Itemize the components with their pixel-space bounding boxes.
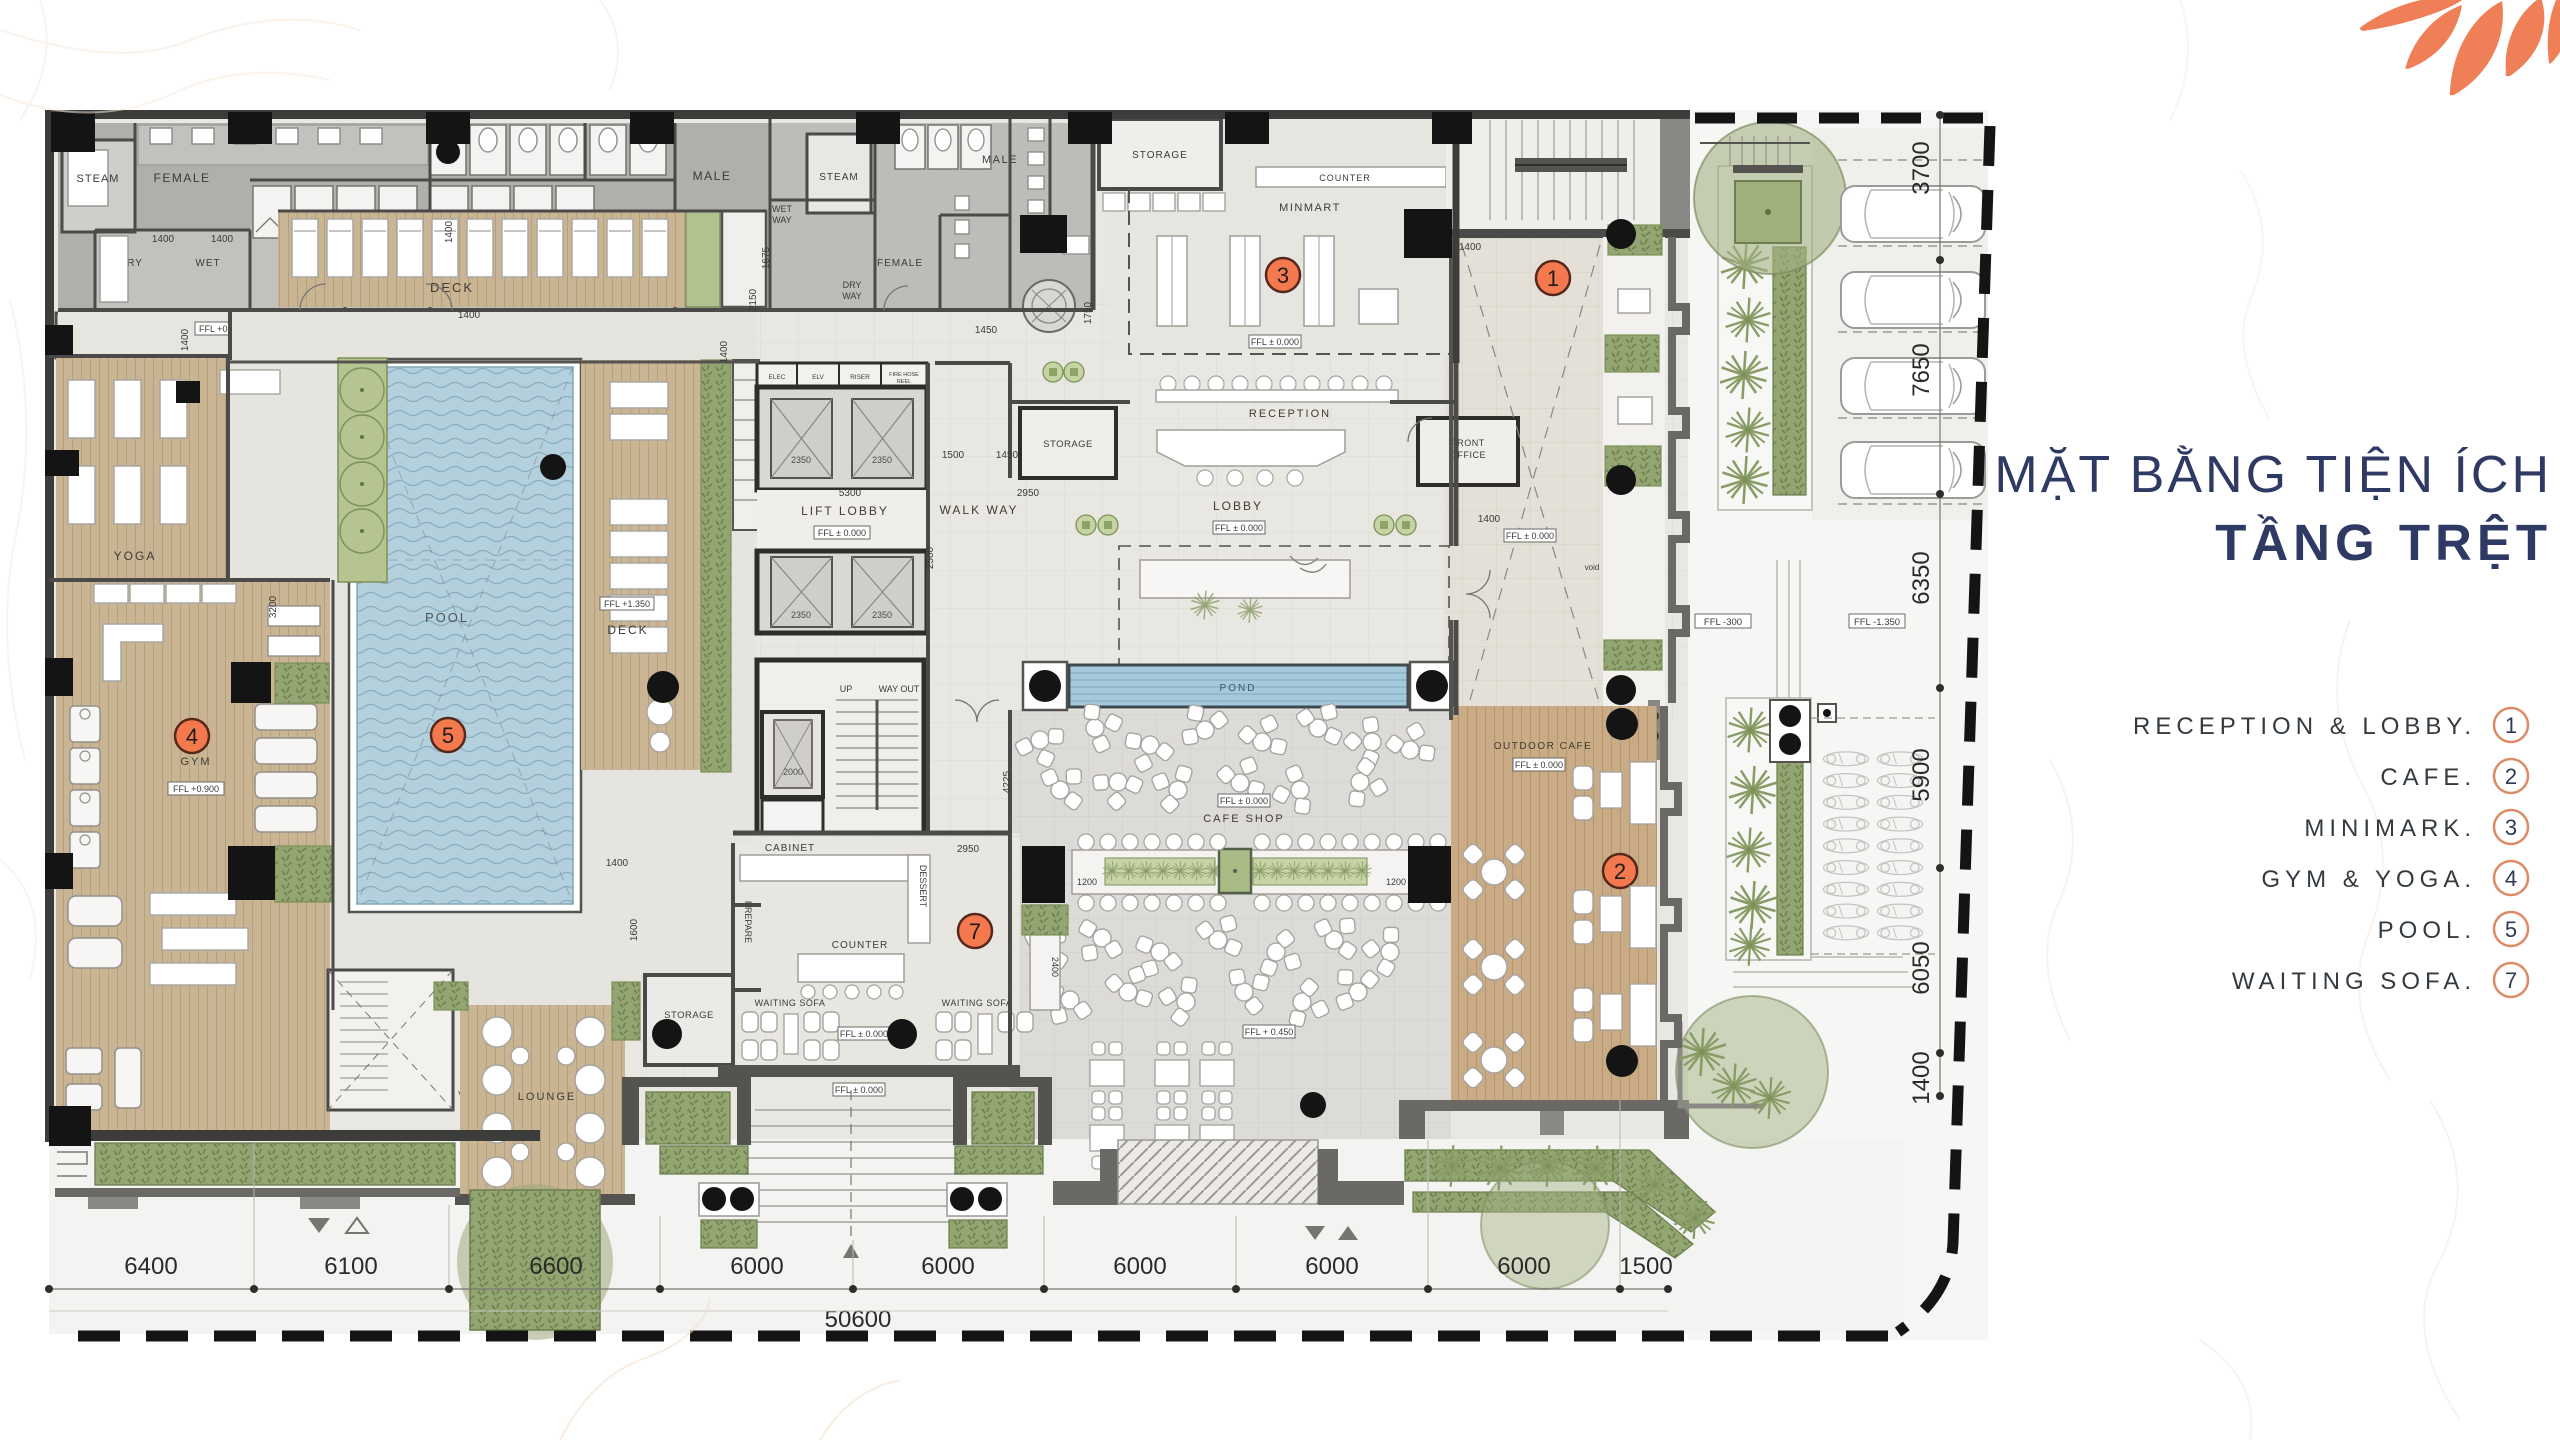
svg-text:FFL ± 0.000: FFL ± 0.000 [1515, 760, 1563, 770]
svg-text:1400: 1400 [458, 310, 481, 321]
svg-text:2950: 2950 [957, 844, 980, 855]
svg-text:50600: 50600 [825, 1306, 892, 1333]
svg-text:4: 4 [186, 724, 198, 749]
svg-text:FFL ± 0.000: FFL ± 0.000 [835, 1085, 883, 1095]
svg-text:5: 5 [2505, 917, 2517, 942]
svg-text:6350: 6350 [1908, 551, 1935, 604]
svg-text:1200: 1200 [1077, 877, 1097, 887]
svg-text:6400: 6400 [124, 1253, 177, 1280]
svg-text:2350: 2350 [872, 610, 892, 620]
svg-text:MẶT BẰNG TIỆN ÍCH: MẶT BẰNG TIỆN ÍCH [1994, 445, 2552, 504]
svg-text:1750: 1750 [1083, 301, 1094, 324]
svg-text:WAY: WAY [842, 291, 862, 301]
svg-text:CABINET: CABINET [765, 843, 815, 854]
svg-text:STORAGE: STORAGE [1043, 439, 1093, 450]
svg-text:FFL ± 0.000: FFL ± 0.000 [1215, 523, 1263, 533]
svg-text:2150: 2150 [748, 288, 759, 311]
svg-text:7650: 7650 [1908, 343, 1935, 396]
svg-text:FFL ± 0.000: FFL ± 0.000 [1251, 337, 1299, 347]
svg-text:2400: 2400 [1050, 957, 1060, 977]
svg-text:3: 3 [2505, 815, 2517, 840]
svg-text:WAITING SOFA: WAITING SOFA [942, 998, 1013, 1008]
svg-text:5900: 5900 [1908, 748, 1935, 801]
svg-text:FIRE HOSE: FIRE HOSE [889, 372, 919, 378]
svg-text:1600: 1600 [629, 918, 640, 941]
svg-text:GYM: GYM [180, 756, 211, 768]
svg-text:1500: 1500 [942, 450, 965, 461]
svg-text:REEL: REEL [897, 379, 911, 385]
svg-text:FFL ± 0.000: FFL ± 0.000 [1220, 796, 1268, 806]
svg-text:UP: UP [840, 684, 853, 694]
svg-text:4: 4 [2505, 866, 2517, 891]
svg-text:WET: WET [772, 204, 792, 214]
svg-text:1400: 1400 [1459, 242, 1482, 253]
svg-text:MINMART: MINMART [1279, 202, 1341, 214]
svg-text:FFL ± 0.000: FFL ± 0.000 [1506, 531, 1554, 541]
svg-text:2350: 2350 [791, 610, 811, 620]
svg-text:GYM & YOGA.: GYM & YOGA. [2261, 866, 2476, 893]
svg-text:STORAGE: STORAGE [664, 1010, 714, 1021]
svg-text:WALK WAY: WALK WAY [940, 503, 1019, 517]
svg-text:WAITING SOFA.: WAITING SOFA. [2232, 968, 2476, 995]
svg-text:CAFE SHOP: CAFE SHOP [1203, 813, 1285, 825]
svg-text:DESSERT: DESSERT [918, 865, 928, 908]
svg-text:3: 3 [1277, 263, 1289, 288]
svg-text:POOL: POOL [425, 610, 469, 625]
svg-text:RECEPTION & LOBBY.: RECEPTION & LOBBY. [2133, 713, 2476, 740]
svg-text:WAY: WAY [772, 215, 792, 225]
svg-text:1400: 1400 [152, 234, 175, 245]
svg-text:6100: 6100 [324, 1253, 377, 1280]
svg-text:WAY OUT: WAY OUT [879, 684, 920, 694]
svg-text:FFL +1.350: FFL +1.350 [604, 599, 650, 609]
svg-text:TẦNG TRỆT: TẦNG TRỆT [2215, 513, 2552, 571]
svg-text:FFL + 0.450: FFL + 0.450 [1245, 1027, 1293, 1037]
svg-text:FFL +0.900: FFL +0.900 [173, 784, 219, 794]
svg-text:LOUNGE: LOUNGE [518, 1091, 576, 1103]
svg-text:1: 1 [2505, 713, 2517, 738]
svg-text:LIFT LOBBY: LIFT LOBBY [801, 504, 889, 518]
svg-text:PREPARE: PREPARE [743, 901, 753, 943]
svg-text:void: void [1585, 563, 1600, 572]
svg-text:6000: 6000 [1497, 1253, 1550, 1280]
svg-text:MALE: MALE [693, 169, 732, 183]
svg-text:1450: 1450 [975, 325, 998, 336]
svg-text:YOGA: YOGA [114, 549, 157, 563]
svg-text:FFL -1.350: FFL -1.350 [1854, 617, 1900, 628]
svg-text:POOL.: POOL. [2378, 917, 2476, 944]
svg-text:1500: 1500 [1619, 1253, 1672, 1280]
svg-text:POND: POND [1220, 683, 1257, 694]
svg-text:2: 2 [2505, 764, 2517, 789]
svg-text:COUNTER: COUNTER [832, 940, 888, 951]
svg-text:7: 7 [969, 919, 981, 944]
svg-text:1400: 1400 [1908, 1051, 1935, 1104]
svg-text:2500: 2500 [925, 546, 936, 569]
svg-text:FFL ± 0.000: FFL ± 0.000 [840, 1029, 888, 1039]
svg-text:COUNTER: COUNTER [1319, 173, 1371, 183]
svg-text:MINIMARK.: MINIMARK. [2304, 815, 2476, 842]
svg-text:1400: 1400 [211, 234, 234, 245]
svg-text:3200: 3200 [268, 595, 279, 618]
svg-text:ELEC: ELEC [769, 374, 786, 381]
svg-text:6000: 6000 [730, 1253, 783, 1280]
svg-text:1: 1 [1547, 266, 1559, 291]
svg-text:OUTDOOR CAFE: OUTDOOR CAFE [1494, 741, 1593, 752]
svg-text:WET: WET [195, 258, 220, 269]
svg-text:5300: 5300 [839, 488, 862, 499]
svg-text:DRY: DRY [843, 280, 862, 290]
svg-text:LOBBY: LOBBY [1213, 499, 1263, 513]
svg-text:5: 5 [442, 723, 454, 748]
svg-text:WAITING SOFA: WAITING SOFA [755, 998, 826, 1008]
svg-text:3700: 3700 [1908, 141, 1935, 194]
svg-text:STEAM: STEAM [77, 173, 120, 185]
svg-text:1675: 1675 [761, 246, 772, 269]
svg-text:STORAGE: STORAGE [1132, 150, 1188, 161]
svg-text:FFL ± 0.000: FFL ± 0.000 [818, 528, 866, 538]
svg-text:FEMALE: FEMALE [877, 258, 923, 269]
svg-text:6000: 6000 [921, 1253, 974, 1280]
svg-text:2350: 2350 [791, 455, 811, 465]
svg-text:6050: 6050 [1908, 941, 1935, 994]
svg-text:2000: 2000 [783, 767, 803, 777]
svg-text:7: 7 [2505, 968, 2517, 993]
svg-text:MALE: MALE [982, 154, 1018, 166]
svg-text:RISER: RISER [850, 374, 870, 381]
svg-text:1450: 1450 [996, 450, 1019, 461]
svg-text:FFL -300: FFL -300 [1704, 617, 1742, 628]
svg-text:FEMALE: FEMALE [153, 171, 210, 185]
svg-text:1400: 1400 [719, 340, 730, 363]
svg-text:1400: 1400 [1478, 514, 1501, 525]
svg-text:4225: 4225 [1002, 770, 1013, 793]
svg-text:ELV: ELV [812, 374, 824, 381]
svg-text:2950: 2950 [1017, 488, 1040, 499]
svg-text:RECEPTION: RECEPTION [1249, 408, 1331, 420]
svg-text:DECK: DECK [430, 280, 474, 295]
svg-text:DECK: DECK [607, 623, 648, 637]
svg-text:6600: 6600 [529, 1253, 582, 1280]
svg-text:2350: 2350 [872, 455, 892, 465]
svg-text:CAFE.: CAFE. [2380, 764, 2476, 791]
svg-text:1400: 1400 [180, 328, 191, 351]
svg-text:6000: 6000 [1305, 1253, 1358, 1280]
svg-text:6000: 6000 [1113, 1253, 1166, 1280]
svg-text:1400: 1400 [606, 858, 629, 869]
svg-text:2: 2 [1614, 859, 1626, 884]
svg-text:1400: 1400 [444, 220, 455, 243]
svg-text:STEAM: STEAM [819, 172, 858, 183]
svg-text:1200: 1200 [1386, 877, 1406, 887]
